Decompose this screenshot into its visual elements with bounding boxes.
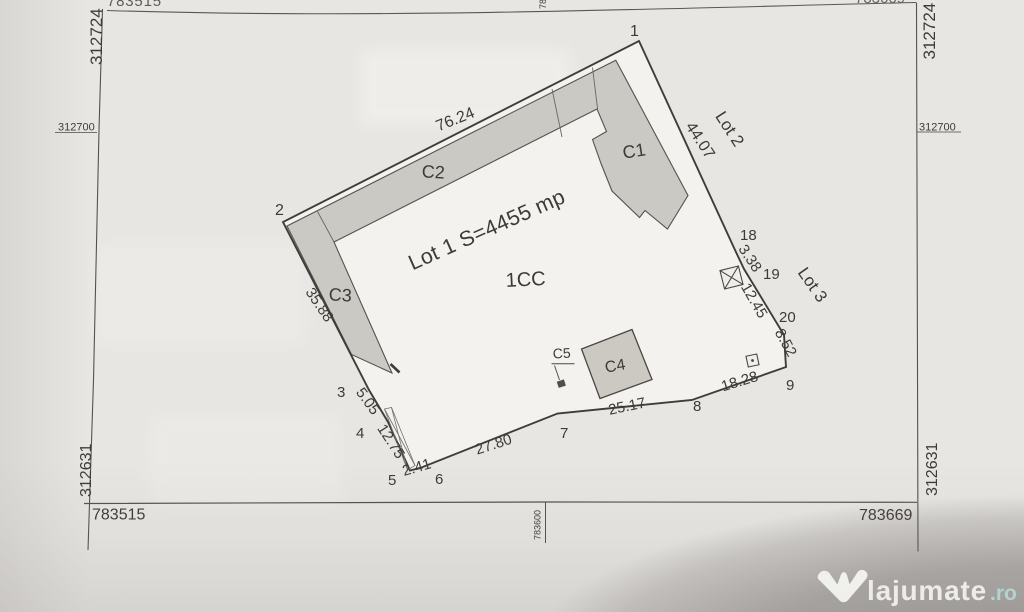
svg-text:lajumate: lajumate xyxy=(867,575,987,606)
svg-text:.ro: .ro xyxy=(990,582,1017,605)
